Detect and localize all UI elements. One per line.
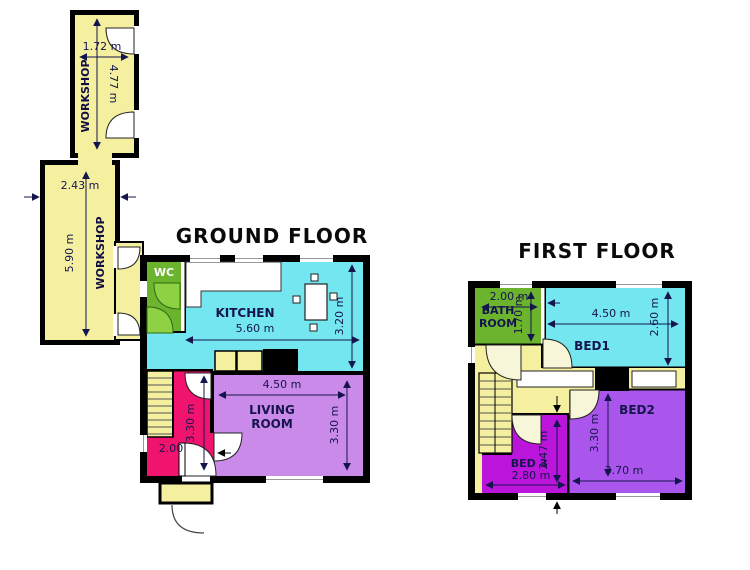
bed1-label: BED1 bbox=[574, 339, 610, 353]
chimney bbox=[595, 367, 629, 391]
hall-width-dim: 2.00 bbox=[159, 442, 184, 455]
first-floor-plan: FIRST FLOOR bbox=[468, 239, 692, 514]
living-room-label-2: ROOM bbox=[251, 417, 293, 431]
kitchen-unit bbox=[215, 351, 236, 371]
kitchen-label: KITCHEN bbox=[215, 306, 274, 320]
internal-wall bbox=[567, 415, 570, 493]
workshop-top-width-dim: 1.72 m bbox=[83, 40, 122, 53]
kitchen-height-dim: 3.20 m bbox=[333, 297, 346, 336]
closet bbox=[632, 371, 676, 387]
floor-plan-drawing: 1.72 m 4.77 m WORKSHOP 2.43 m 5.90 m WOR… bbox=[0, 0, 750, 570]
landing bbox=[512, 390, 569, 415]
stove bbox=[263, 349, 298, 371]
kitchen-width-dim: 5.60 m bbox=[236, 322, 275, 335]
wc-wall bbox=[181, 262, 185, 333]
ground-floor-title: GROUND FLOOR bbox=[176, 224, 368, 248]
chair bbox=[293, 296, 300, 303]
bathroom-label-1: BATH bbox=[482, 304, 515, 317]
first-floor-title: FIRST FLOOR bbox=[518, 239, 676, 263]
workshop-main: 2.43 m 5.90 m WORKSHOP bbox=[24, 152, 143, 345]
bed1-height-dim: 2.60 m bbox=[648, 298, 661, 337]
internal-wall bbox=[172, 371, 174, 437]
wc-label: WC bbox=[154, 266, 174, 279]
workshop-top-label: WORKSHOP bbox=[79, 59, 92, 132]
door-arc bbox=[172, 505, 204, 533]
workshop-main-label: WORKSHOP bbox=[94, 216, 107, 289]
kitchen-unit bbox=[237, 351, 262, 371]
bathroom-wall-line bbox=[545, 288, 547, 345]
floor-plan-page: 1.72 m 4.77 m WORKSHOP 2.43 m 5.90 m WOR… bbox=[0, 0, 750, 570]
bed2-label: BED2 bbox=[619, 403, 655, 417]
internal-wall bbox=[147, 369, 213, 372]
workshop-top-height-dim: 4.77 m bbox=[107, 65, 120, 104]
bathroom-wall bbox=[541, 288, 545, 345]
bed3-height-dim: 2.47 m bbox=[537, 431, 550, 470]
passage-between-workshops bbox=[78, 152, 112, 166]
hall-height-dim: 3.30 m bbox=[184, 404, 197, 443]
chair bbox=[310, 324, 317, 331]
bed3-width-dim: 2.80 m bbox=[512, 469, 551, 482]
living-width-dim: 4.50 m bbox=[263, 378, 302, 391]
workshop-main-height-dim: 5.90 m bbox=[63, 234, 76, 273]
closet bbox=[517, 371, 593, 387]
door-opening bbox=[140, 281, 147, 297]
bed1-width-dim: 4.50 m bbox=[592, 307, 631, 320]
internal-wall bbox=[598, 389, 685, 391]
ground-floor-plan: GROUND FLOOR bbox=[140, 224, 370, 533]
porch bbox=[160, 483, 212, 503]
workshop-top: 1.72 m 4.77 m WORKSHOP bbox=[70, 10, 139, 158]
bed2-height-dim: 3.30 m bbox=[588, 414, 601, 453]
dining-table bbox=[305, 284, 327, 320]
living-room-label-1: LIVING bbox=[249, 403, 295, 417]
bed2-width-dim: 3.70 m bbox=[605, 464, 644, 477]
chair bbox=[311, 274, 318, 281]
bathroom-height-dim: 1.70 m bbox=[512, 296, 525, 335]
workshop-main-width-dim: 2.43 m bbox=[61, 179, 100, 192]
living-height-dim: 3.30 m bbox=[328, 406, 341, 445]
